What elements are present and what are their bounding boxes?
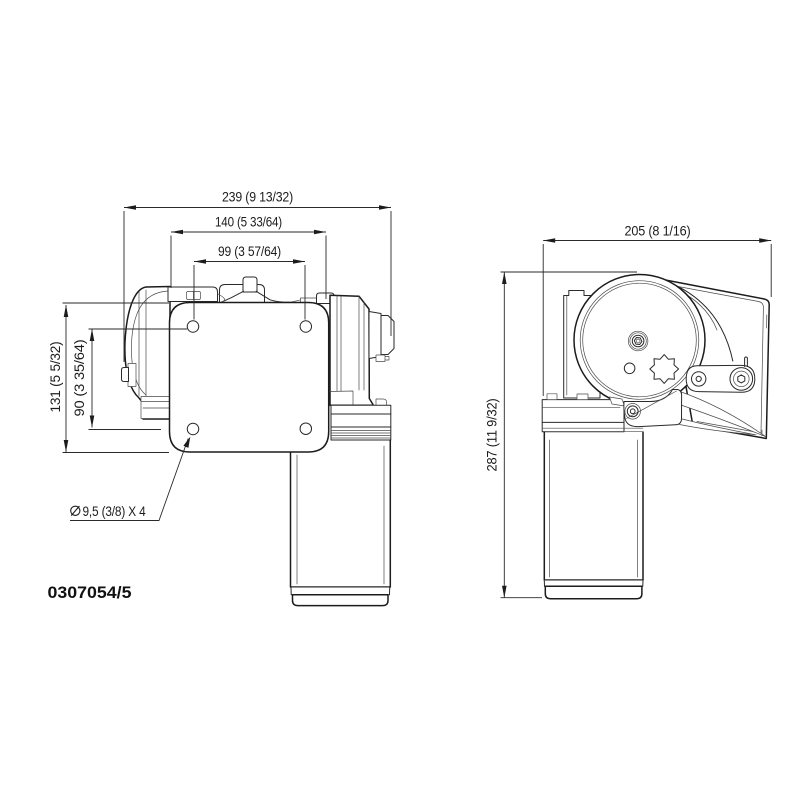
svg-text:0307054/5: 0307054/5 (48, 583, 132, 602)
svg-text:287 (11 9/32): 287 (11 9/32) (484, 399, 500, 472)
svg-text:9,5 (3/8) X 4: 9,5 (3/8) X 4 (83, 504, 147, 519)
svg-text:140 (5 33/64): 140 (5 33/64) (215, 214, 282, 230)
svg-text:205 (8 1/16): 205 (8 1/16) (625, 223, 691, 239)
svg-text:90 (3 35/64): 90 (3 35/64) (71, 340, 87, 417)
svg-text:131 (5 5/32): 131 (5 5/32) (47, 342, 63, 413)
svg-text:99 (3 57/64): 99 (3 57/64) (218, 243, 281, 259)
svg-text:239 (9 13/32): 239 (9 13/32) (222, 189, 293, 205)
